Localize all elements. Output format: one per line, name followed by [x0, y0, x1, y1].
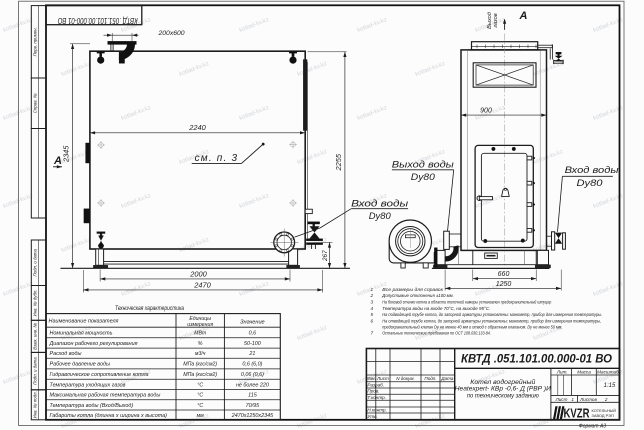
svg-text:А: А: [519, 10, 528, 22]
svg-text:1: 1: [370, 287, 373, 292]
svg-text:Пров.: Пров.: [367, 389, 379, 394]
svg-text:0,06 (0,6): 0,06 (0,6): [241, 372, 264, 378]
svg-text:Справ. №: Справ. №: [32, 93, 37, 113]
svg-text:Инв. № подл.: Инв. № подл.: [32, 391, 37, 418]
svg-text:измерения: измерения: [187, 322, 213, 328]
svg-text:Лист: Лист: [555, 397, 568, 402]
svg-text:Температура уходящих газов: Температура уходящих газов: [50, 382, 126, 388]
svg-text:267: 267: [322, 250, 329, 262]
svg-text:Н.контр.: Н.контр.: [367, 408, 386, 413]
svg-text:2345: 2345: [62, 145, 71, 163]
svg-text:Дата: Дата: [440, 376, 454, 381]
svg-text:50-100: 50-100: [244, 341, 261, 347]
svg-text:Расход воды: Расход воды: [50, 351, 82, 357]
svg-text:3: 3: [370, 300, 373, 305]
svg-text:200х600: 200х600: [158, 30, 185, 37]
svg-text:см. п. 3: см. п. 3: [195, 153, 239, 164]
svg-text:КВТД .051.101.00.000-01 ВО: КВТД .051.101.00.000-01 ВО: [461, 354, 612, 366]
svg-text:2470х1250х2345: 2470х1250х2345: [231, 413, 274, 419]
svg-text:°С: °С: [197, 382, 203, 388]
svg-text:Гидравлическое сопротивление к: Гидравлическое сопротивление котла: [50, 372, 149, 378]
svg-text:Значение: Значение: [240, 320, 265, 326]
svg-text:м3/ч: м3/ч: [195, 351, 206, 357]
svg-text:Разраб.: Разраб.: [367, 382, 384, 387]
svg-text:2470: 2470: [193, 280, 211, 289]
svg-text:70/95: 70/95: [246, 403, 260, 409]
svg-text:Формат А3: Формат А3: [579, 423, 607, 429]
svg-text:1: 1: [571, 397, 574, 402]
svg-text:На подводящей трубе котла, до: На подводящей трубе котла, до запорной а…: [382, 311, 602, 317]
svg-text:°С: °С: [197, 393, 203, 399]
svg-text:Температура воды (Вход/Выход): Температура воды (Вход/Выход): [50, 403, 134, 409]
svg-text:На отводящей трубе котла, до з: На отводящей трубе котла, до запорной ар…: [382, 317, 601, 323]
svg-text:На боковой стенке котла в обла: На боковой стенке котла в области топочн…: [382, 299, 551, 305]
svg-text:Наименование показателя: Наименование показателя: [49, 319, 119, 325]
svg-text:Т.контр.: Т.контр.: [367, 395, 386, 400]
svg-text:2: 2: [604, 397, 608, 402]
svg-text:Диапазон рабочего регулировани: Диапазон рабочего регулирования: [49, 341, 138, 347]
svg-text:Подп.: Подп.: [424, 376, 436, 381]
svg-text:Dy80: Dy80: [577, 178, 604, 189]
svg-text:Рабочее давление воды: Рабочее давление воды: [50, 362, 110, 368]
svg-text:1:15: 1:15: [604, 383, 616, 389]
svg-text:Dy80: Dy80: [369, 211, 392, 222]
svg-text:Выход: Выход: [487, 12, 493, 29]
svg-text:21: 21: [248, 351, 255, 357]
svg-text:0,6 (6,0): 0,6 (6,0): [242, 362, 262, 368]
svg-text:Масштаб: Масштаб: [597, 369, 619, 374]
svg-text:МПа (кгс/см2): МПа (кгс/см2): [183, 362, 217, 368]
svg-text:N докум.: N докум.: [396, 376, 415, 381]
svg-text:KVZR: KVZR: [564, 406, 590, 421]
svg-text:Вход воды: Вход воды: [351, 198, 408, 209]
svg-text:900: 900: [480, 107, 492, 114]
svg-text:Выход воды: Выход воды: [392, 160, 454, 171]
svg-text:Взам. инв. №: Взам. инв. №: [32, 323, 37, 350]
svg-text:Остальные технические требован: Остальные технические требования по ОСТ …: [382, 331, 491, 336]
svg-text:Масса: Масса: [577, 369, 591, 374]
svg-text:МВт: МВт: [194, 331, 207, 337]
svg-text:Подп. и дата: Подп. и дата: [32, 357, 37, 385]
svg-text:ЗАВОД РЭП: ЗАВОД РЭП: [592, 413, 614, 418]
svg-text:Все размеры для справок: Все размеры для справок: [382, 287, 444, 292]
svg-text:Изм.: Изм.: [366, 376, 376, 381]
svg-text:0,6: 0,6: [249, 331, 257, 337]
svg-text:А: А: [53, 155, 62, 167]
svg-text:2240: 2240: [188, 123, 206, 132]
svg-text:1250: 1250: [496, 281, 512, 288]
svg-text:6: 6: [370, 318, 373, 323]
svg-text:Лист: Лист: [376, 376, 389, 381]
svg-text:Лит.: Лит.: [556, 369, 568, 374]
svg-text:Температура воды на входе 70°С: Температура воды на входе 70°С, на выход…: [382, 306, 490, 311]
svg-text:Dy80: Dy80: [411, 172, 436, 183]
svg-text:Утв.: Утв.: [367, 414, 377, 419]
svg-text:Допустимые отклонения ±100 мм.: Допустимые отклонения ±100 мм.: [381, 293, 453, 298]
svg-text:по техническому заданию: по техническому заданию: [467, 392, 539, 399]
svg-text:Номинальная мощность: Номинальная мощность: [50, 331, 113, 337]
svg-text:не более 220: не более 220: [236, 382, 269, 388]
svg-text:Максимальная рабочая температу: Максимальная рабочая температура воды: [50, 393, 161, 399]
svg-text:газов: газов: [493, 13, 499, 27]
svg-text:Техническая характеристика: Техническая характеристика: [115, 305, 184, 312]
svg-text:%: %: [198, 341, 203, 347]
svg-text:2255: 2255: [334, 153, 343, 171]
svg-text:115: 115: [248, 393, 258, 399]
svg-text:2: 2: [369, 293, 373, 298]
svg-text:5: 5: [370, 312, 373, 317]
svg-text:Инв. № дубл.: Инв. № дубл.: [32, 289, 37, 316]
svg-text:предохранительный клапан Dу не: предохранительный клапан Dу не менее 40 …: [382, 323, 562, 329]
svg-text:МПа (кгс/см2): МПа (кгс/см2): [183, 372, 217, 378]
svg-text:КВТД .051.101.00.000-01 ВО: КВТД .051.101.00.000-01 ВО: [58, 16, 138, 25]
svg-text:2000: 2000: [189, 269, 207, 278]
svg-text:Перв. примен.: Перв. примен.: [32, 27, 37, 56]
svg-text:Листов: Листов: [579, 397, 597, 402]
svg-text:4: 4: [370, 306, 373, 311]
svg-text:°С: °С: [197, 403, 203, 409]
svg-text:Габариты котла (длинна х ширин: Габариты котла (длинна х ширина х высота…: [50, 413, 168, 419]
svg-text:Подп. и дата: Подп. и дата: [32, 248, 37, 276]
svg-text:660: 660: [498, 271, 510, 278]
svg-text:7: 7: [370, 331, 373, 336]
svg-text:Вход воды: Вход воды: [565, 165, 619, 176]
svg-text:мм: мм: [197, 413, 205, 419]
